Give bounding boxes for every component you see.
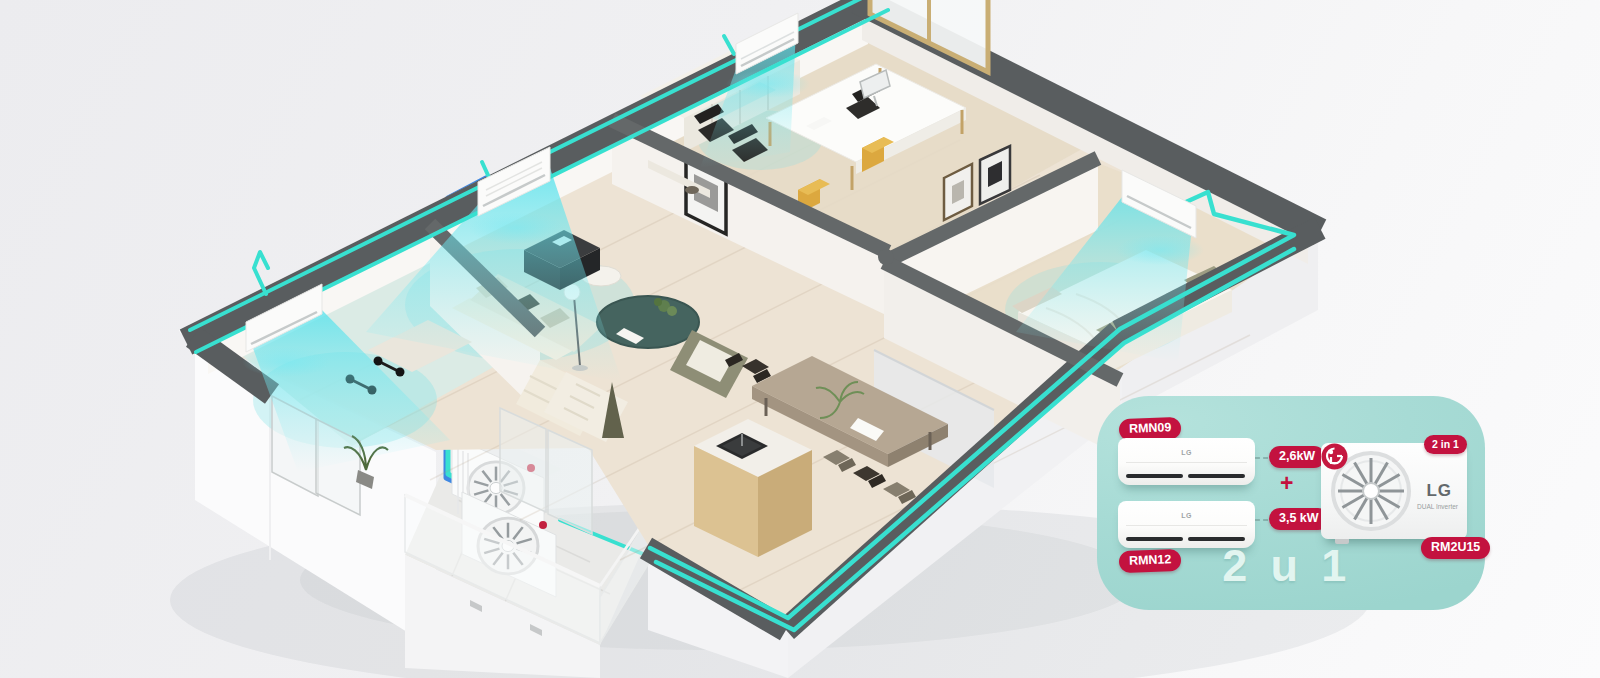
- model-badge-rm2u15: RM2U15: [1421, 537, 1490, 559]
- lg-mini-logo: LG: [1181, 449, 1192, 456]
- unit-seam: [1126, 462, 1247, 463]
- outdoor-unit-image: LG DUAL Inverter: [1321, 443, 1467, 539]
- capacity-badge-2: 3,5 kW: [1269, 508, 1329, 530]
- two-in-one-text: 2 u 1: [1159, 540, 1415, 592]
- badge-2in1: 2 in 1: [1424, 435, 1467, 454]
- dual-inverter-label: DUAL Inverter: [1417, 503, 1458, 510]
- product-card: RMN09 LG LG RMN12 2,6kW + 3,5 kW: [1097, 396, 1485, 610]
- lg-wordmark: LG: [1426, 481, 1452, 501]
- unit-vent: [1188, 474, 1245, 479]
- capacity-badge-1: 2,6kW: [1269, 446, 1325, 468]
- hero-image: RMN09 LG LG RMN12 2,6kW + 3,5 kW: [0, 0, 1600, 678]
- connector-dash: [1255, 519, 1268, 521]
- unit-seam: [1126, 525, 1247, 526]
- plus-sign: +: [1280, 470, 1293, 497]
- indoor-unit-image-rmn09: LG: [1118, 438, 1255, 485]
- lg-mini-logo: LG: [1181, 512, 1192, 519]
- lg-logo-icon: [1321, 443, 1348, 470]
- lg-logo-icon: [539, 521, 547, 529]
- connector-dash: [1255, 457, 1268, 459]
- unit-vent: [1126, 474, 1183, 479]
